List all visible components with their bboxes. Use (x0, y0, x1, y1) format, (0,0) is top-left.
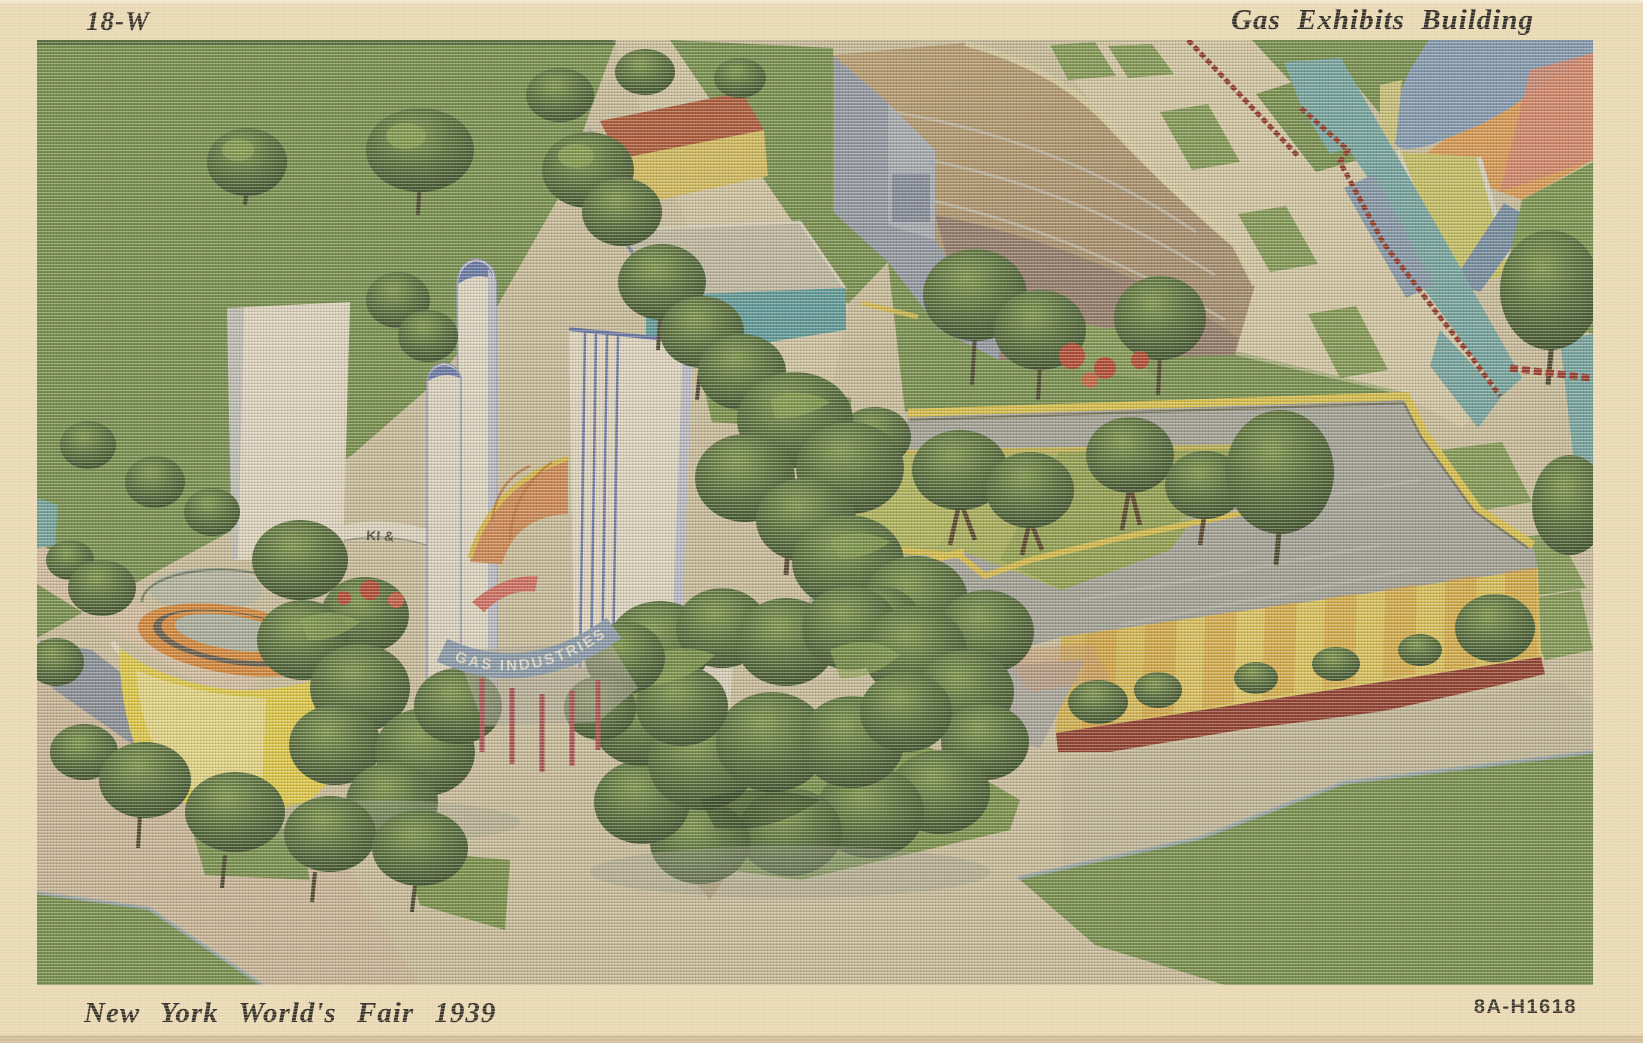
svg-text:Gas Exhibits Building: Gas Exhibits Building (1231, 4, 1534, 36)
svg-text:18-W: 18-W (86, 6, 151, 36)
svg-text:8A-H1618: 8A-H1618 (1474, 996, 1577, 1018)
svg-text:New York World's Fair 1939: New York World's Fair 1939 (83, 997, 496, 1029)
svg-text:KI &: KI & (366, 527, 395, 544)
